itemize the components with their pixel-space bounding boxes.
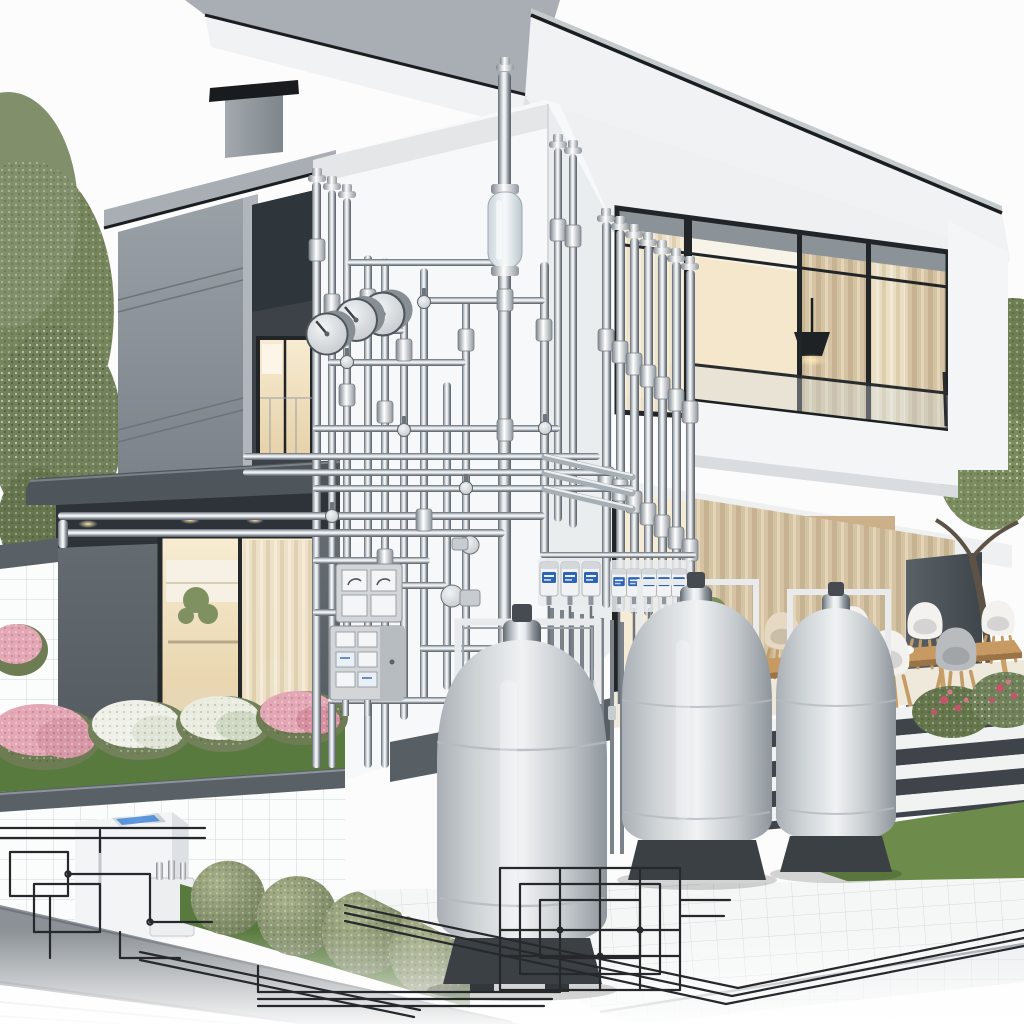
topiary-ball (191, 861, 265, 935)
utility-cabinet (75, 812, 194, 944)
upper-left-window (252, 190, 315, 470)
electrical-panel (336, 564, 402, 622)
illustration-stage (0, 0, 1024, 1024)
house-illustration (0, 0, 1024, 1024)
ground-floor-window (160, 536, 315, 714)
electrical-panels (330, 564, 404, 716)
flower-bush-white (88, 700, 192, 760)
filter-cylinder (488, 184, 522, 276)
right-return (948, 220, 1008, 470)
